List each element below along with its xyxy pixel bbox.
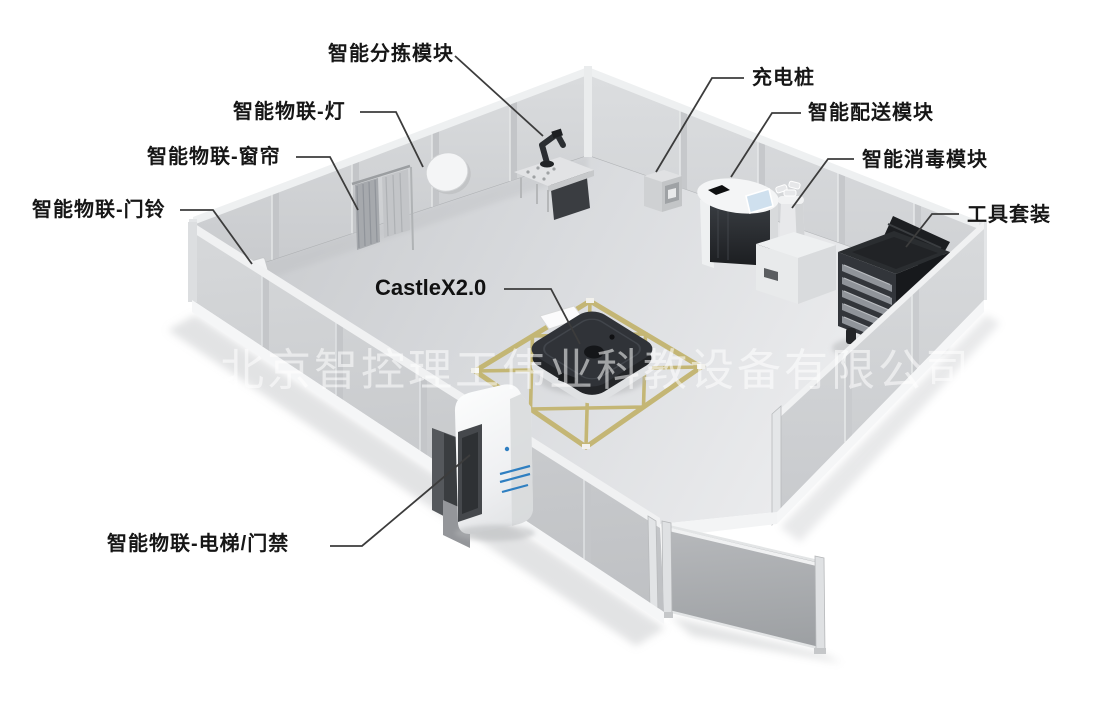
- label-elevator-access: 智能物联-电梯/门禁: [107, 532, 289, 556]
- charging-pile-figure: [644, 170, 682, 212]
- label-sorting-module: 智能分拣模块: [328, 42, 454, 66]
- label-iot-curtain: 智能物联-窗帘: [147, 145, 281, 169]
- detached-door-panel: [662, 521, 826, 654]
- scene-illustration: [0, 0, 1114, 714]
- label-iot-light: 智能物联-灯: [233, 100, 346, 124]
- label-tool-kit: 工具套装: [967, 203, 1051, 227]
- label-castlex-robot: CastleX2.0: [375, 276, 486, 300]
- diagram-stage: 北京智控理工伟业科教设备有限公司 智能分拣模块 智能物联-灯 智能物联-窗帘 智…: [0, 0, 1114, 714]
- label-delivery-module: 智能配送模块: [808, 101, 934, 125]
- label-disinfection-module: 智能消毒模块: [862, 148, 988, 172]
- label-iot-doorbell: 智能物联-门铃: [32, 198, 166, 222]
- label-charging-pile: 充电桩: [752, 66, 815, 90]
